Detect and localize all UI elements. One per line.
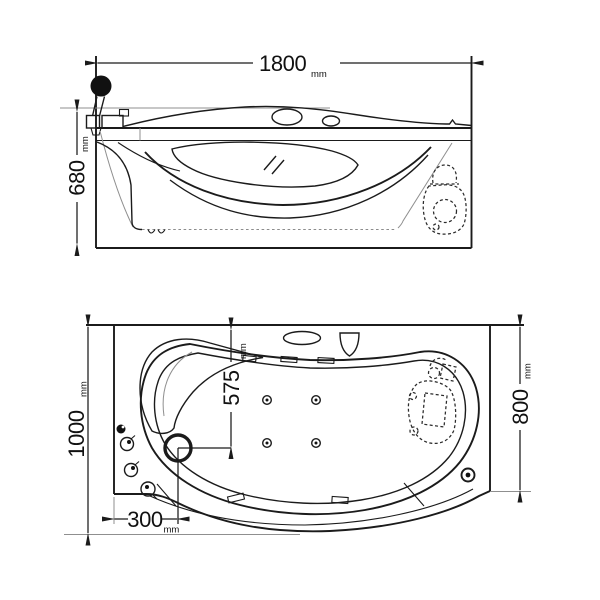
shower-head-icon xyxy=(91,76,112,97)
dim-label-1000: 1000 xyxy=(64,410,89,458)
basin-curve-outer xyxy=(145,147,431,205)
dim-unit-1800: mm xyxy=(311,69,327,80)
top-plan-view: 1000 mm 800 mm 575 mm 300 mm xyxy=(64,325,534,536)
front-elevation-view: 1800 mm 680 mm xyxy=(60,51,472,248)
dim-label-300: 300 xyxy=(127,507,163,532)
dimension-drain-offset-horizontal: 300 mm xyxy=(115,448,180,536)
dim-label-680: 680 xyxy=(65,160,90,196)
faucet-deck-oval xyxy=(284,332,321,345)
dimension-overall-length: 1800 mm xyxy=(98,51,472,80)
dim-unit-680: mm xyxy=(80,136,91,152)
control-panel xyxy=(340,333,359,356)
dim-label-800: 800 xyxy=(508,389,533,425)
dim-label-1800: 1800 xyxy=(259,51,307,76)
bowl-rim-inner xyxy=(154,353,465,503)
skirt-inner-line xyxy=(150,489,473,525)
skirt-seam-diagonal xyxy=(398,143,452,228)
tub-feet xyxy=(148,230,165,234)
faucet-block-left xyxy=(87,116,100,129)
glass-hatch xyxy=(264,156,284,174)
deck-oval-large xyxy=(272,109,302,125)
dim-unit-300: mm xyxy=(164,525,180,536)
inner-wall-left xyxy=(97,142,142,230)
drawing-sheet: 1800 mm 680 mm xyxy=(0,0,600,600)
headrest-highlight xyxy=(163,352,192,416)
faucet-block-right xyxy=(102,116,123,129)
bathtub-technical-drawing: 1800 mm 680 mm xyxy=(0,0,600,600)
pump-unit-hidden-front xyxy=(423,165,466,234)
dimension-plan-length: 1000 mm xyxy=(64,327,90,533)
dim-unit-575: mm xyxy=(238,343,249,359)
deck-oval-small xyxy=(323,116,340,126)
dimension-plan-width: 800 mm xyxy=(508,327,534,490)
dim-unit-1000: mm xyxy=(79,381,90,397)
control-knobs xyxy=(117,425,158,500)
pump-unit-hidden-plan xyxy=(408,358,456,443)
bowl-rim-outer xyxy=(141,344,479,514)
water-jets xyxy=(263,396,475,482)
deck-ticks xyxy=(157,355,424,506)
backrest-pillow xyxy=(172,142,358,187)
dim-label-575: 575 xyxy=(219,370,244,406)
dimension-overall-height: 680 mm xyxy=(65,112,92,244)
shower-pole xyxy=(93,97,105,117)
dim-unit-800: mm xyxy=(523,363,534,379)
